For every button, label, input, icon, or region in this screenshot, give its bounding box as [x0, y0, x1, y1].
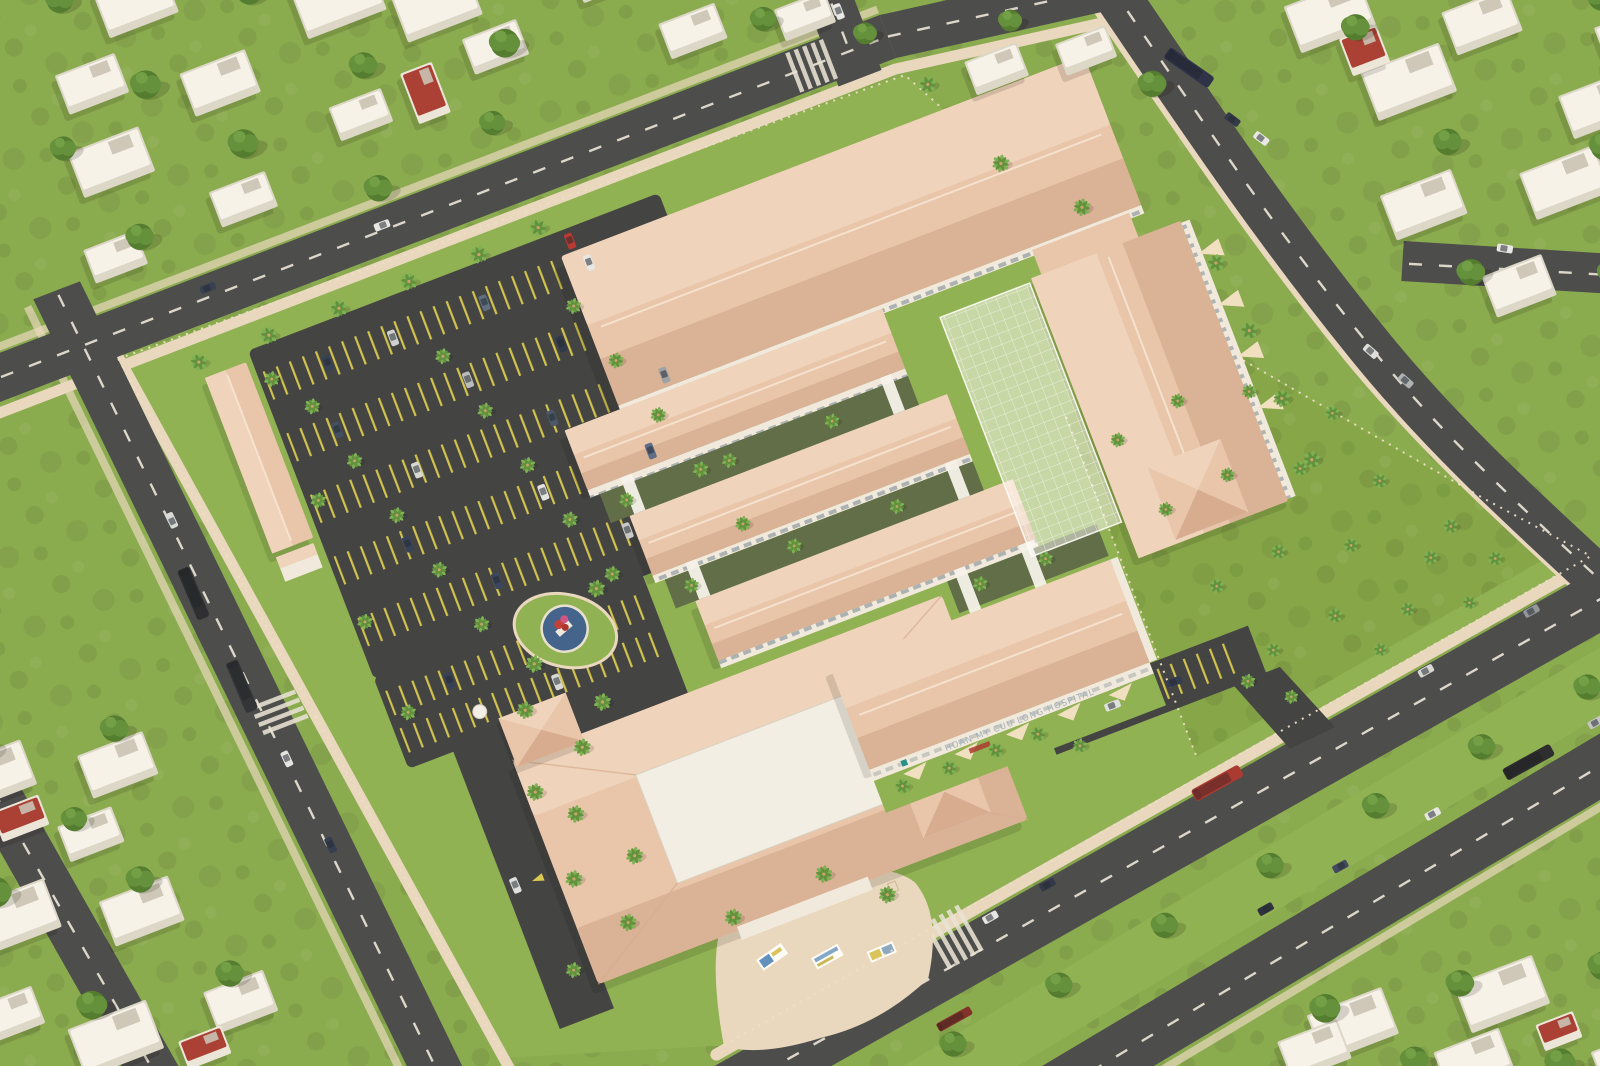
scene-svg: HOAN MY CUU LONG HOSPITAL: [0, 0, 1600, 1066]
aerial-hospital-render: HOAN MY CUU LONG HOSPITAL: [0, 0, 1600, 1066]
sunlight-overlay: [0, 0, 1600, 1066]
